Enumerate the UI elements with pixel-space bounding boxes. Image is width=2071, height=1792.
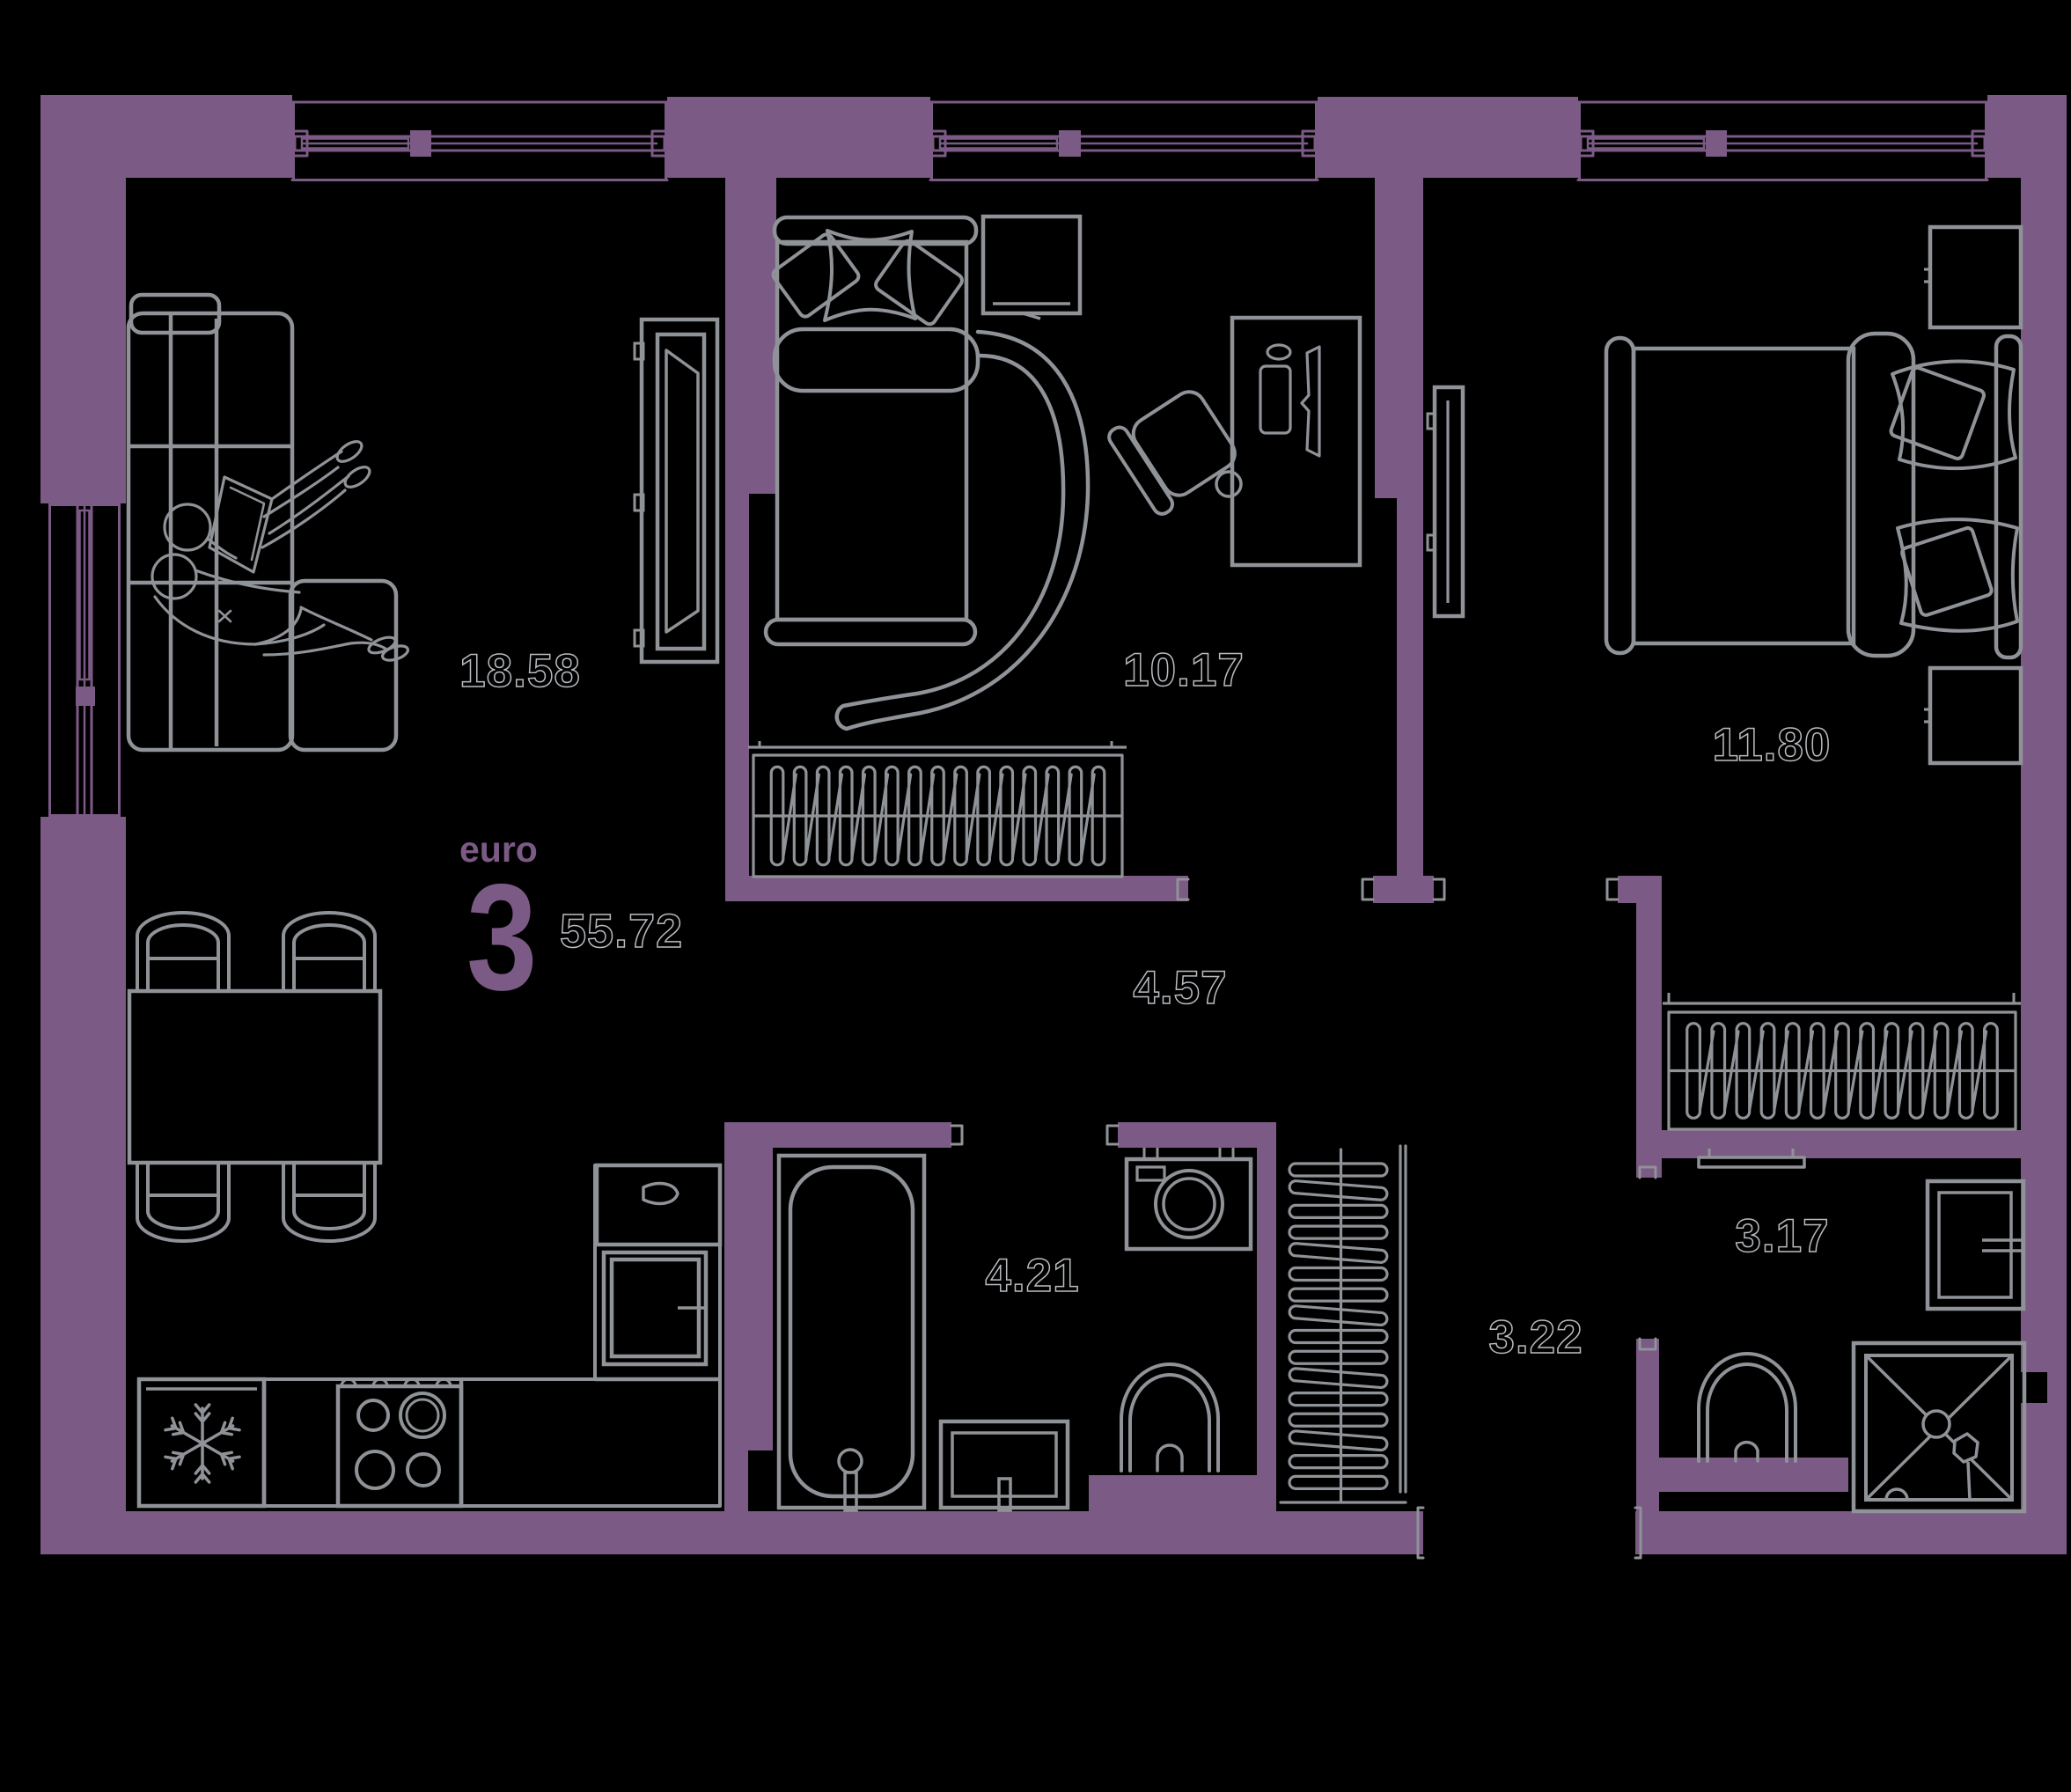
svg-text:11.80: 11.80 (1713, 719, 1832, 771)
svg-text:4.21: 4.21 (985, 1250, 1079, 1302)
svg-text:3.22: 3.22 (1488, 1311, 1583, 1363)
svg-text:10.17: 10.17 (1123, 644, 1245, 696)
svg-text:3: 3 (466, 852, 537, 1022)
svg-text:3.17: 3.17 (1735, 1210, 1829, 1262)
svg-text:18.58: 18.58 (459, 645, 581, 697)
svg-text:4.57: 4.57 (1133, 962, 1227, 1014)
svg-text:55.72: 55.72 (560, 905, 683, 958)
